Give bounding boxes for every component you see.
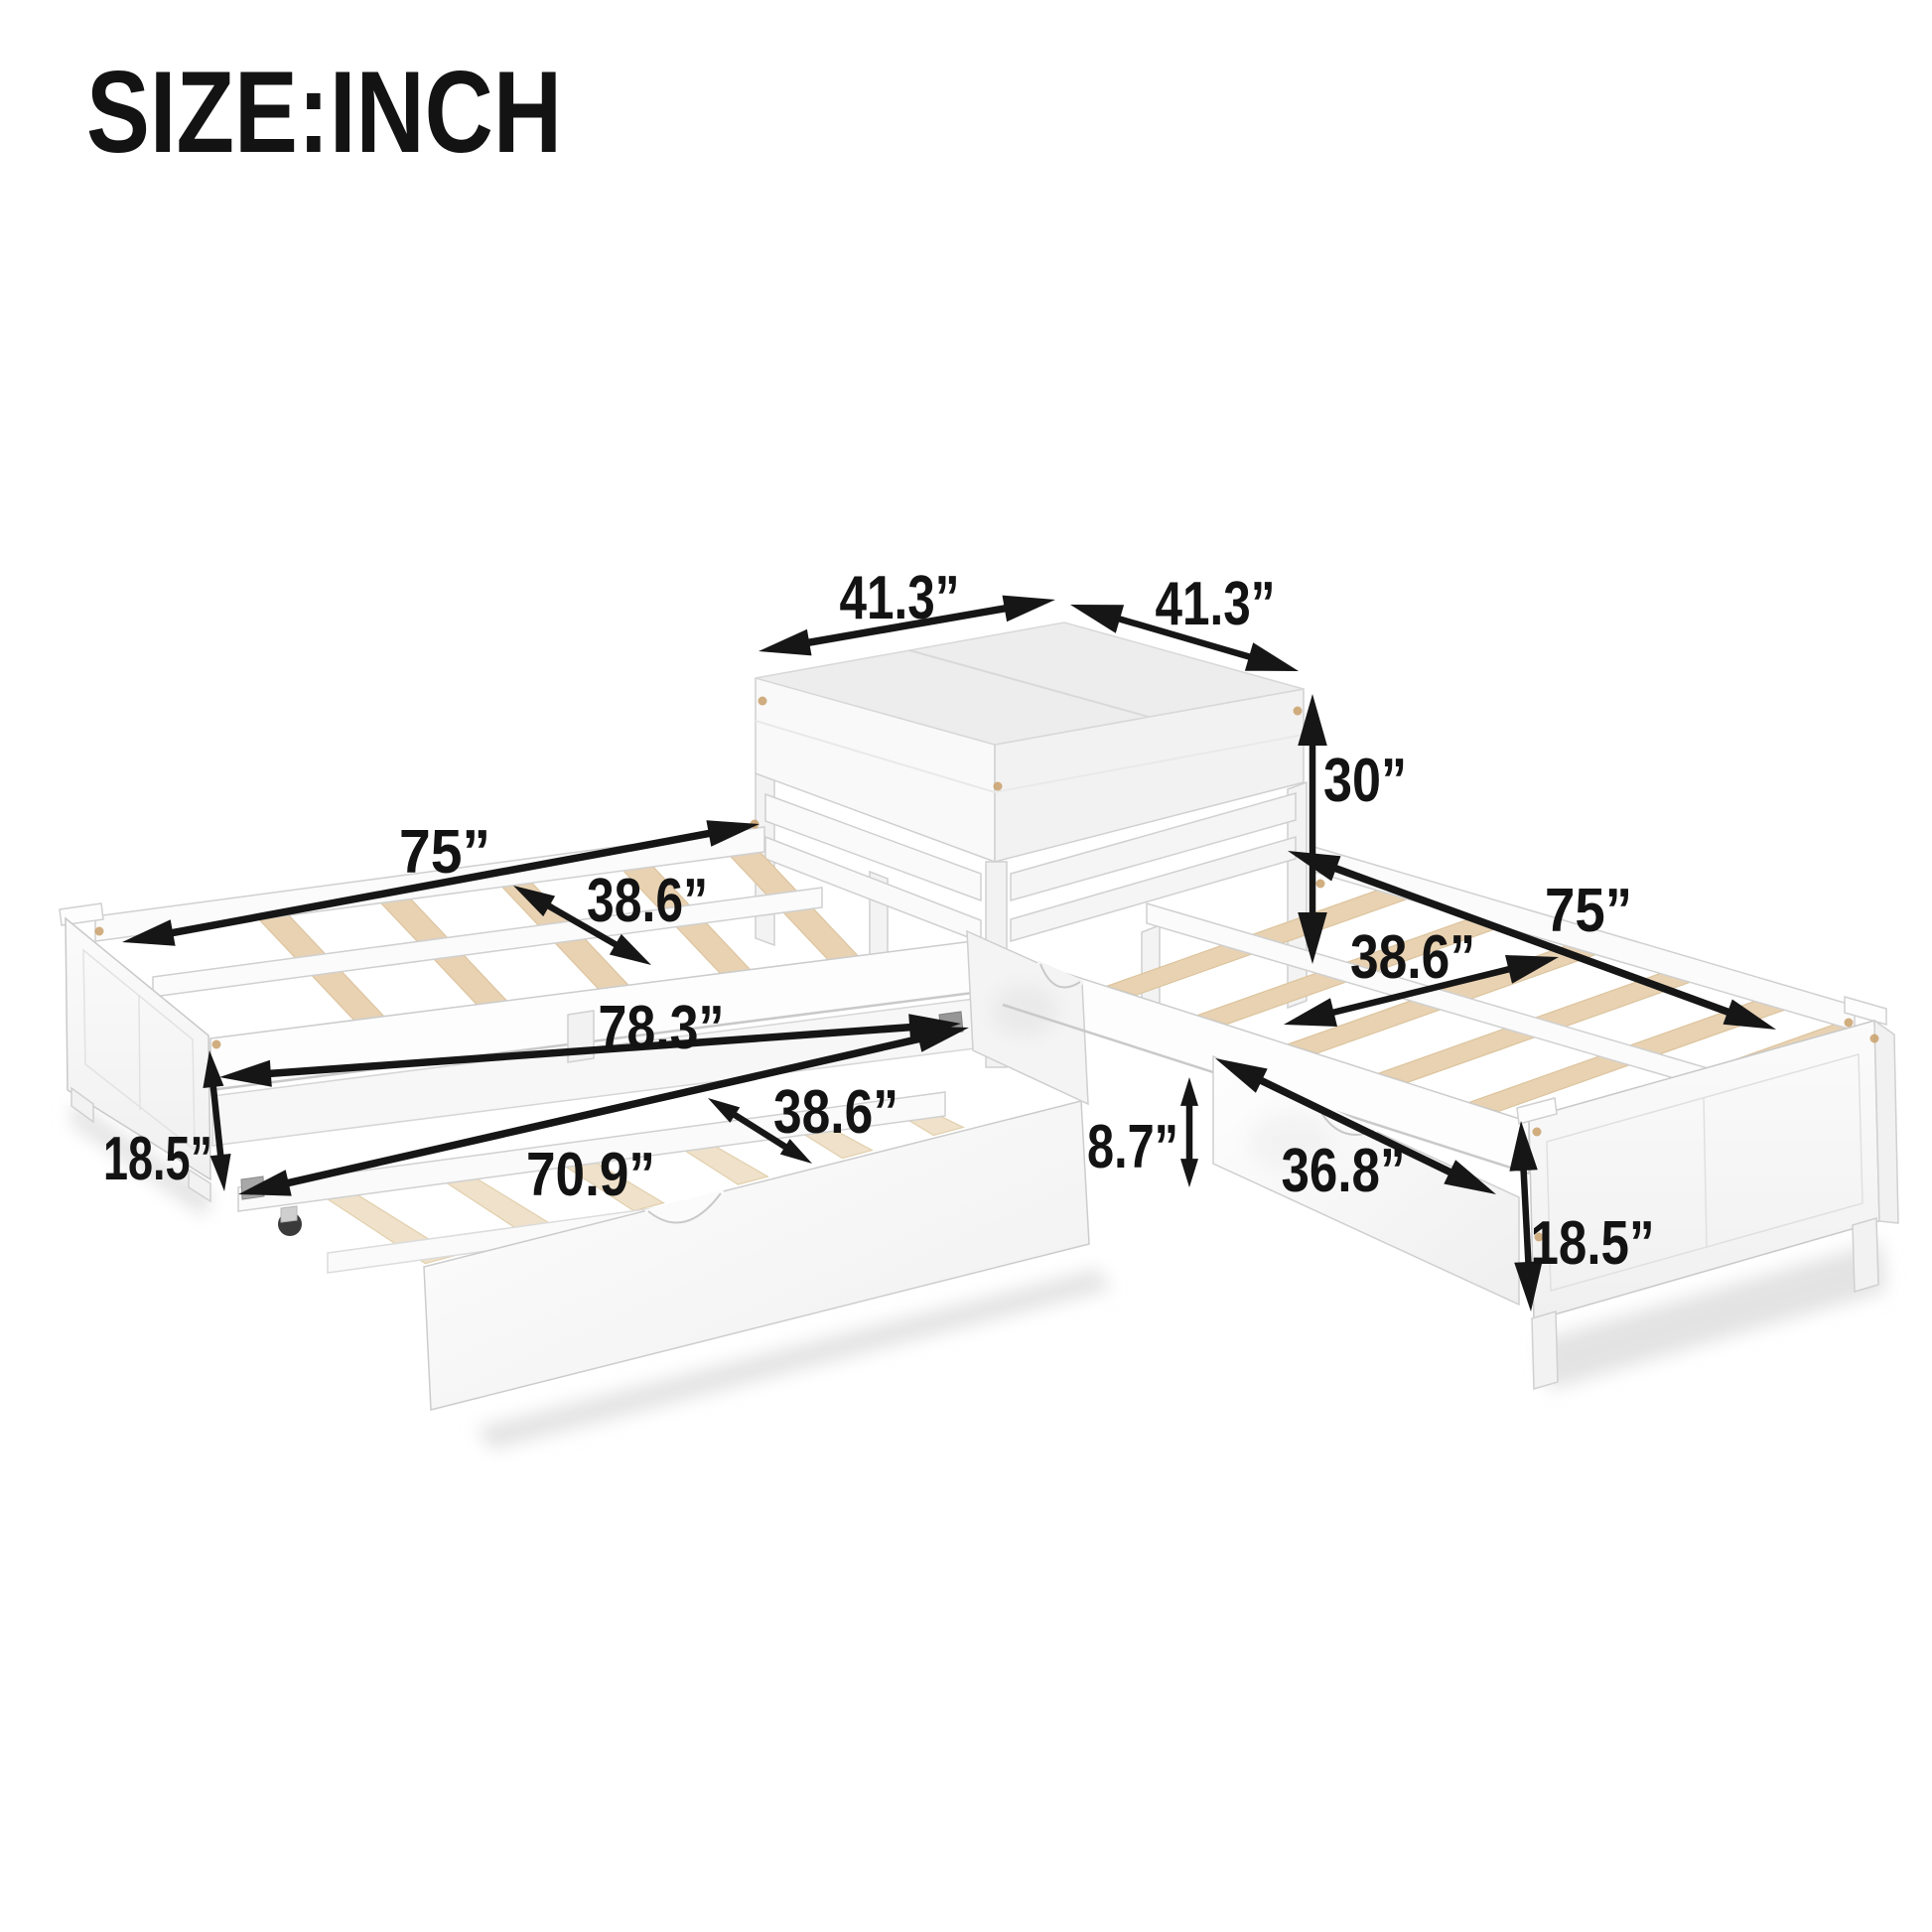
svg-text:38.6”: 38.6” <box>587 867 708 935</box>
svg-text:41.3”: 41.3” <box>840 564 960 632</box>
svg-text:70.9”: 70.9” <box>526 1141 655 1209</box>
svg-text:38.6”: 38.6” <box>1350 923 1475 992</box>
svg-text:75”: 75” <box>399 818 490 887</box>
svg-text:18.5”: 18.5” <box>1531 1209 1655 1278</box>
svg-text:30”: 30” <box>1323 747 1407 815</box>
svg-text:41.3”: 41.3” <box>1156 570 1276 638</box>
svg-text:8.7”: 8.7” <box>1087 1113 1178 1181</box>
svg-text:36.8”: 36.8” <box>1282 1137 1406 1205</box>
svg-text:78.3”: 78.3” <box>599 994 725 1062</box>
svg-text:75”: 75” <box>1545 877 1632 945</box>
svg-text:SIZE:INCH: SIZE:INCH <box>86 47 562 177</box>
svg-text:38.6”: 38.6” <box>773 1078 898 1147</box>
svg-text:18.5”: 18.5” <box>103 1125 212 1193</box>
